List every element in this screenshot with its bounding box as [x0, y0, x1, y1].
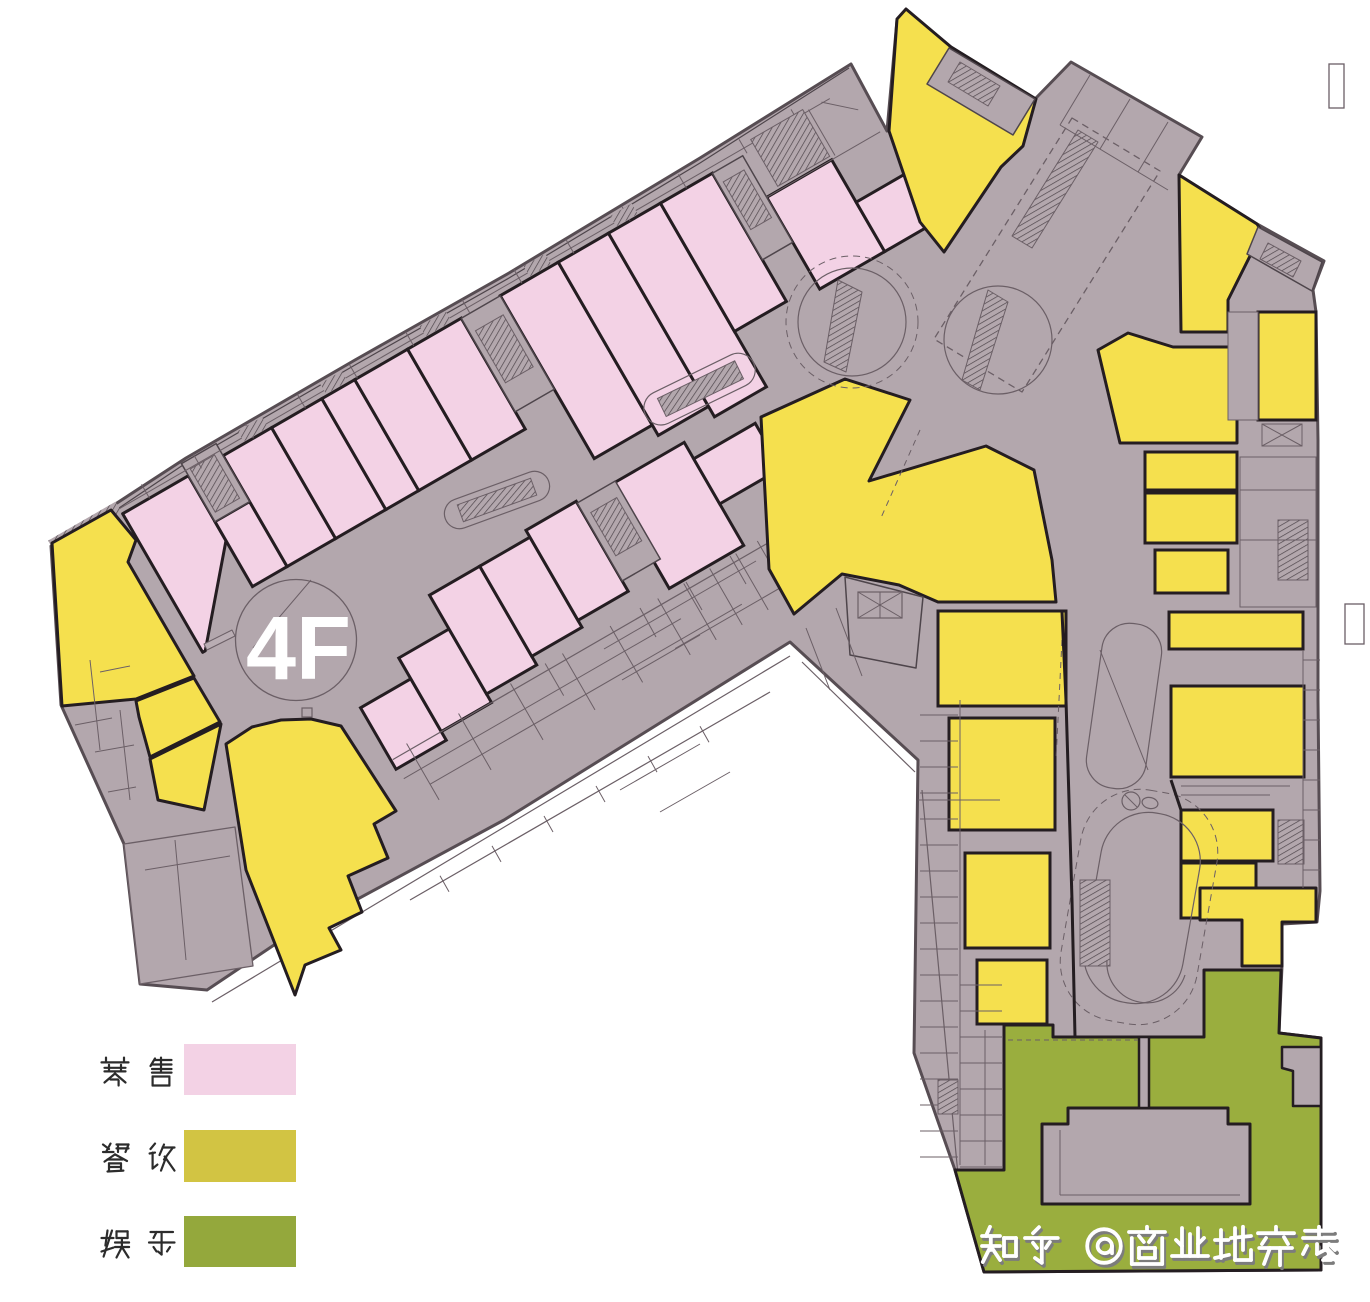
- svg-text:4F: 4F: [246, 599, 351, 699]
